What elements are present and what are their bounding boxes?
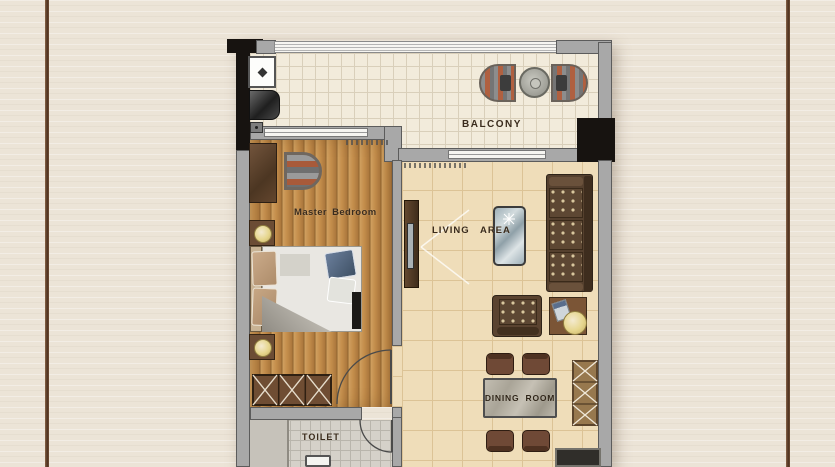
living-area-label: LIVING AREA (432, 225, 511, 236)
storage-cabinet-x-pattern (573, 361, 597, 425)
toilet-label: TOILET (302, 432, 340, 442)
balcony-label: BALCONY (462, 119, 522, 130)
plan-annotations (0, 0, 835, 467)
floor-plan-page: DINING ROOM (0, 0, 835, 467)
tv-viewing-lines (421, 210, 469, 284)
coffee-table-sparkle-icon (503, 213, 515, 225)
toilet-door-swing (360, 420, 392, 452)
bedroom-door-swing (337, 350, 391, 404)
master-bedroom-label: Master Bedroom (294, 207, 377, 218)
wardrobe-x-pattern (253, 374, 331, 406)
